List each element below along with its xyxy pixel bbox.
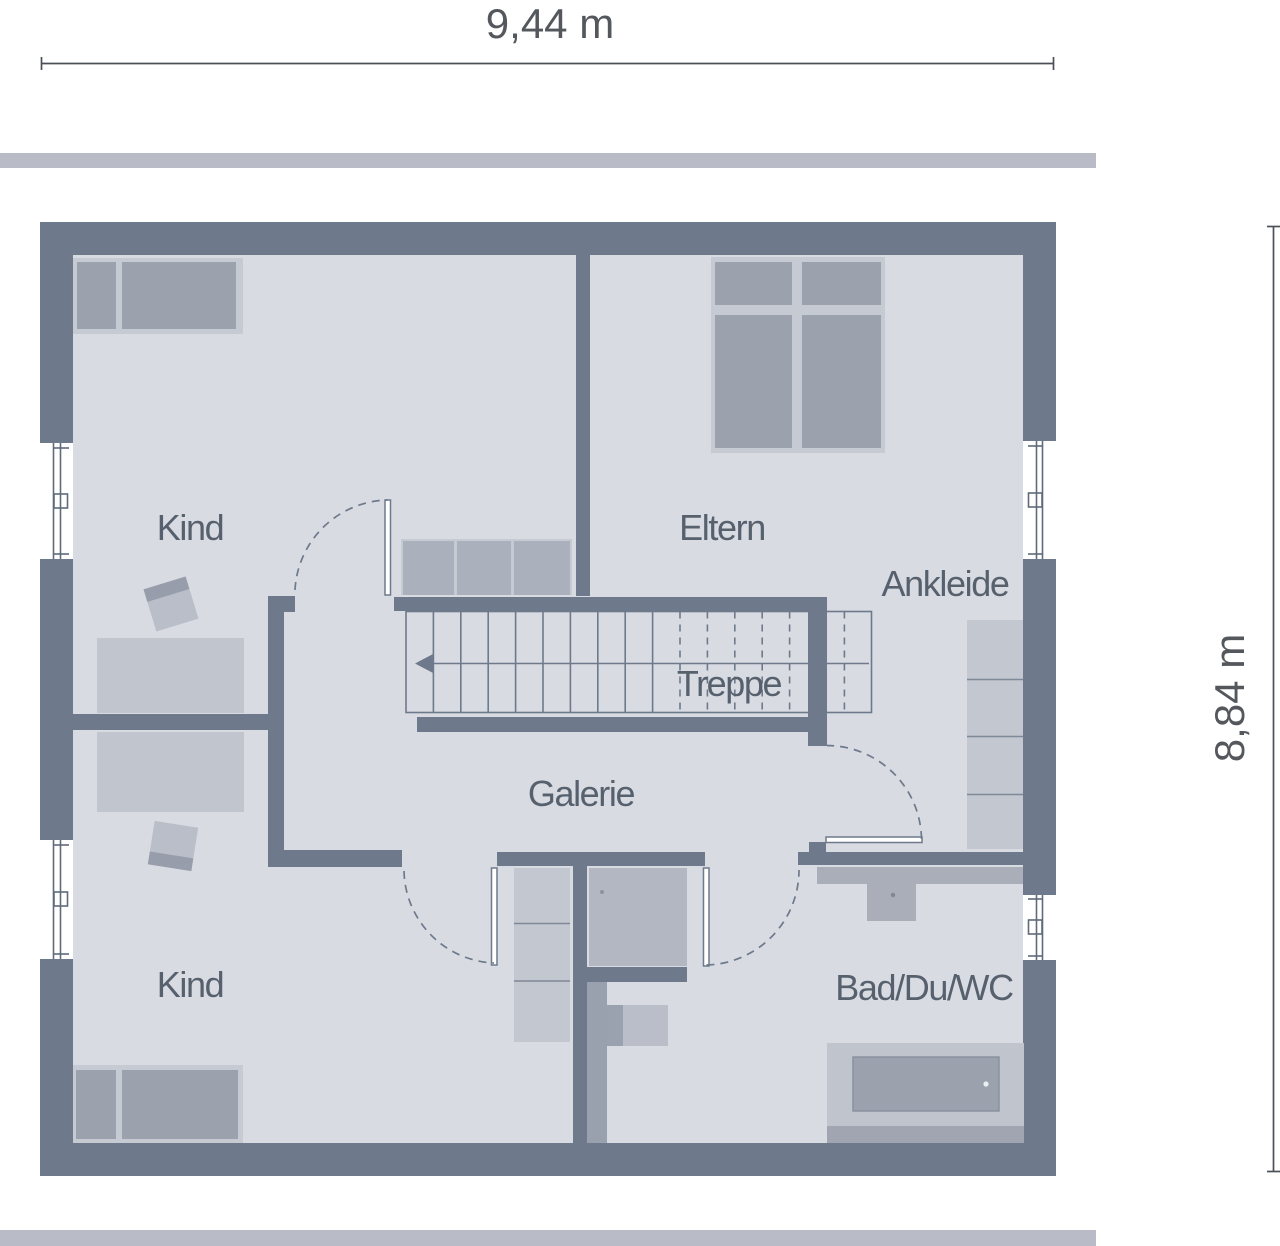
svg-text:Kind: Kind [157,964,223,1005]
svg-text:Bad/Du/WC: Bad/Du/WC [835,967,1013,1008]
svg-text:Kind: Kind [157,507,223,548]
svg-text:Ankleide: Ankleide [882,563,1009,604]
svg-text:Galerie: Galerie [528,773,635,814]
svg-text:Treppe: Treppe [677,663,782,704]
svg-text:Eltern: Eltern [679,507,765,548]
svg-text:8,84 m: 8,84 m [1206,634,1253,762]
svg-text:9,44 m: 9,44 m [486,0,614,47]
